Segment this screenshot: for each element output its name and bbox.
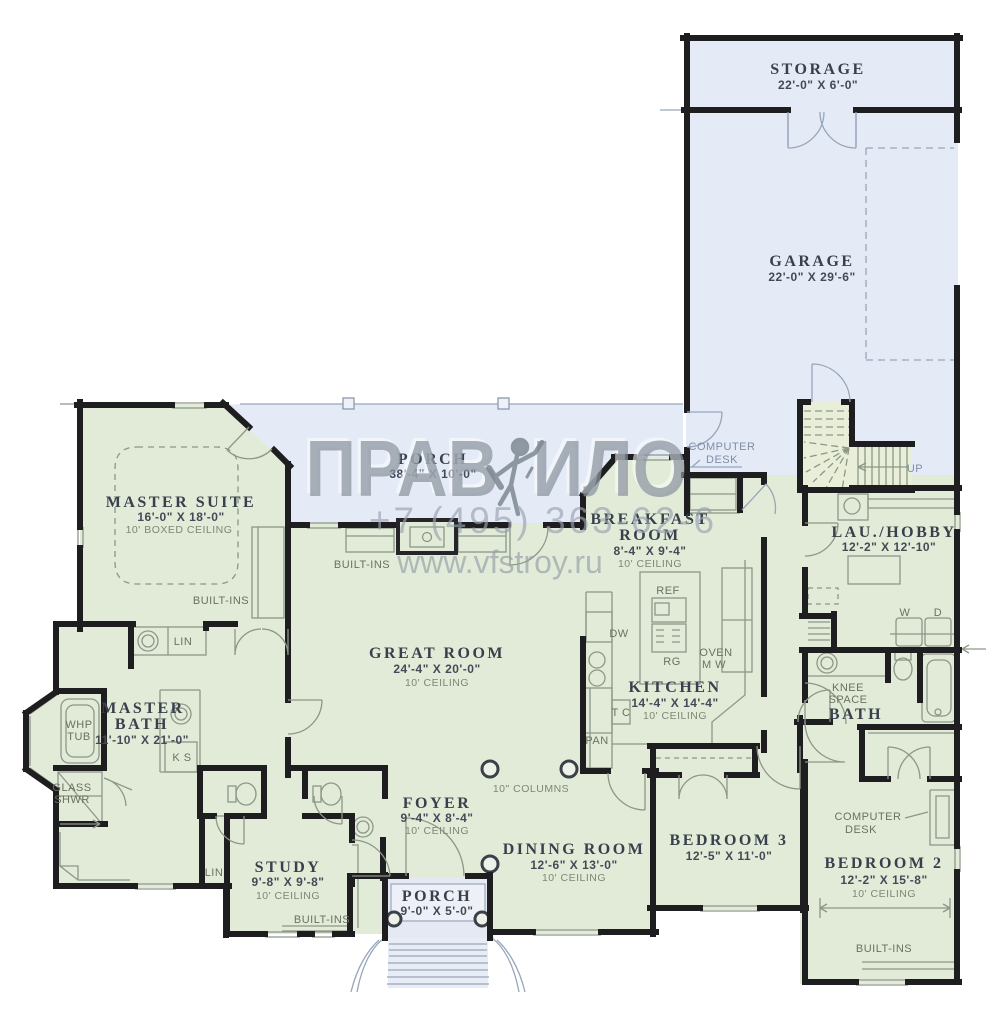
- svg-text:BATH: BATH: [115, 716, 169, 733]
- svg-text:12'-2" X 12'-10": 12'-2" X 12'-10": [842, 540, 936, 554]
- svg-text:MASTER SUITE: MASTER SUITE: [106, 494, 256, 511]
- svg-text:STORAGE: STORAGE: [770, 61, 865, 78]
- svg-text:10' CEILING: 10' CEILING: [852, 888, 916, 900]
- svg-text:LIN: LIN: [174, 636, 193, 648]
- svg-text:BEDROOM 3: BEDROOM 3: [670, 832, 789, 849]
- svg-text:COMPUTER: COMPUTER: [689, 441, 756, 453]
- svg-text:16'-0" X 18'-0": 16'-0" X 18'-0": [137, 510, 224, 524]
- svg-text:KNEE: KNEE: [832, 682, 864, 694]
- svg-text:10' CEILING: 10' CEILING: [405, 677, 469, 689]
- svg-text:GARAGE: GARAGE: [769, 253, 854, 270]
- svg-text:REF: REF: [656, 585, 680, 597]
- svg-text:TUB: TUB: [67, 731, 91, 743]
- svg-text:10' CEILING: 10' CEILING: [618, 558, 682, 570]
- svg-text:MASTER: MASTER: [101, 700, 184, 717]
- svg-text:FOYER: FOYER: [403, 795, 472, 812]
- svg-text:SPACE: SPACE: [829, 694, 868, 706]
- svg-text:DESK: DESK: [845, 824, 877, 836]
- svg-text:BUILT-INS: BUILT-INS: [193, 595, 249, 607]
- svg-text:9'-0" X 5'-0": 9'-0" X 5'-0": [401, 904, 474, 918]
- svg-text:DINING ROOM: DINING ROOM: [503, 841, 646, 858]
- svg-text:DESK: DESK: [706, 454, 738, 466]
- svg-text:WHP: WHP: [65, 719, 92, 731]
- svg-text:12'-2" X 15'-8": 12'-2" X 15'-8": [840, 873, 927, 887]
- svg-text:11'-10" X 21'-0": 11'-10" X 21'-0": [95, 733, 189, 747]
- svg-text:GLASS: GLASS: [52, 782, 91, 794]
- svg-text:10' BOXED CEILING: 10' BOXED CEILING: [126, 524, 233, 536]
- svg-text:8'-4" X 9'-4": 8'-4" X 9'-4": [614, 544, 687, 558]
- svg-text:DW: DW: [609, 628, 628, 640]
- svg-text:LIN: LIN: [205, 867, 224, 879]
- svg-text:LAU./HOBBY: LAU./HOBBY: [831, 524, 956, 541]
- svg-text:T C: T C: [611, 707, 630, 719]
- svg-text:9'-8" X 9'-8": 9'-8" X 9'-8": [252, 875, 325, 889]
- svg-text:10' CEILING: 10' CEILING: [643, 710, 707, 722]
- svg-text:SHWR: SHWR: [54, 794, 90, 806]
- svg-text:PAN: PAN: [585, 735, 608, 747]
- svg-text:PORCH: PORCH: [402, 888, 472, 905]
- svg-text:12'-5" X 11'-0": 12'-5" X 11'-0": [686, 849, 773, 863]
- svg-text:OVEN: OVEN: [699, 647, 732, 659]
- svg-text:10' CEILING: 10' CEILING: [256, 890, 320, 902]
- svg-text:9'-4" X 8'-4": 9'-4" X 8'-4": [401, 811, 474, 825]
- svg-text:COMPUTER: COMPUTER: [835, 811, 902, 823]
- svg-text:10" COLUMNS: 10" COLUMNS: [493, 783, 569, 795]
- svg-text:RG: RG: [663, 656, 681, 668]
- svg-text:BUILT-INS: BUILT-INS: [294, 914, 350, 926]
- svg-text:W: W: [900, 607, 911, 619]
- svg-text:22'-0" X 29'-6": 22'-0" X 29'-6": [768, 270, 855, 284]
- svg-text:BUILT-INS: BUILT-INS: [334, 559, 390, 571]
- svg-text:24'-4" X 20'-0": 24'-4" X 20'-0": [393, 662, 480, 676]
- svg-text:UP: UP: [907, 463, 923, 475]
- svg-text:www.vfstroy.ru: www.vfstroy.ru: [396, 544, 603, 580]
- svg-text:12'-6" X 13'-0": 12'-6" X 13'-0": [530, 858, 617, 872]
- svg-text:BATH: BATH: [829, 706, 883, 723]
- svg-text:+7 (495) 363-62-6: +7 (495) 363-62-6: [369, 500, 717, 541]
- svg-text:KITCHEN: KITCHEN: [628, 679, 721, 696]
- svg-text:10' CEILING: 10' CEILING: [405, 825, 469, 837]
- svg-text:K S: K S: [172, 752, 191, 764]
- svg-text:GREAT ROOM: GREAT ROOM: [369, 645, 505, 662]
- svg-text:10' CEILING: 10' CEILING: [542, 872, 606, 884]
- svg-text:BEDROOM 2: BEDROOM 2: [825, 855, 944, 872]
- svg-text:14'-4" X 14'-4": 14'-4" X 14'-4": [631, 696, 718, 710]
- svg-text:D: D: [934, 607, 942, 619]
- svg-text:22'-0" X 6'-0": 22'-0" X 6'-0": [778, 78, 858, 92]
- svg-text:M W: M W: [702, 659, 726, 671]
- svg-text:STUDY: STUDY: [255, 859, 322, 876]
- svg-text:BUILT-INS: BUILT-INS: [856, 943, 912, 955]
